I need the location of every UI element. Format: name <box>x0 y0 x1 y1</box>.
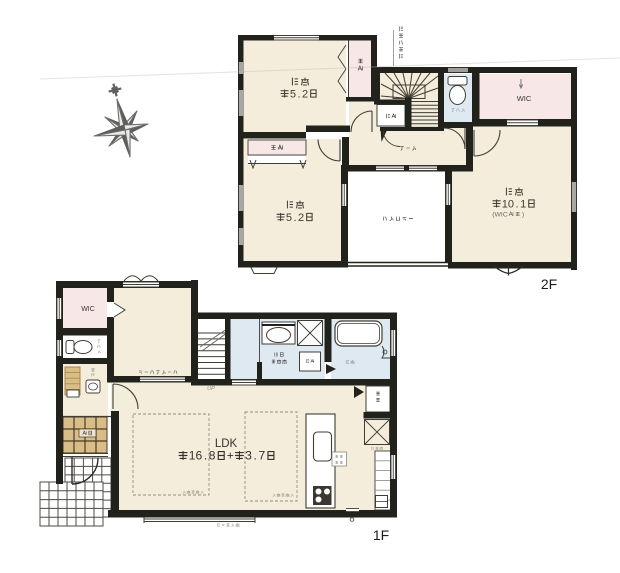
svg-text:+: + <box>227 449 234 463</box>
svg-text:5: 5 <box>286 212 292 224</box>
svg-text:0: 0 <box>508 198 514 210</box>
svg-text:(WIC: (WIC <box>492 212 508 219</box>
svg-text:3: 3 <box>245 449 252 463</box>
svg-text:UP: UP <box>207 386 215 392</box>
svg-text:8: 8 <box>209 449 216 463</box>
svg-text:.: . <box>297 88 300 100</box>
svg-text:1F: 1F <box>373 527 389 543</box>
svg-text:.: . <box>293 212 296 224</box>
svg-text:2F: 2F <box>541 276 557 292</box>
svg-text:.: . <box>516 198 519 210</box>
svg-text:6: 6 <box>195 449 202 463</box>
svg-text:2: 2 <box>302 88 308 100</box>
svg-text:.: . <box>204 449 207 463</box>
svg-text:WIC: WIC <box>517 94 532 103</box>
svg-text:2: 2 <box>298 212 304 224</box>
svg-text:.: . <box>253 449 256 463</box>
svg-text:WIC: WIC <box>81 306 95 313</box>
svg-text:1: 1 <box>520 198 526 210</box>
svg-text:): ) <box>522 212 524 219</box>
svg-text:7: 7 <box>258 449 265 463</box>
svg-text:5: 5 <box>290 88 296 100</box>
